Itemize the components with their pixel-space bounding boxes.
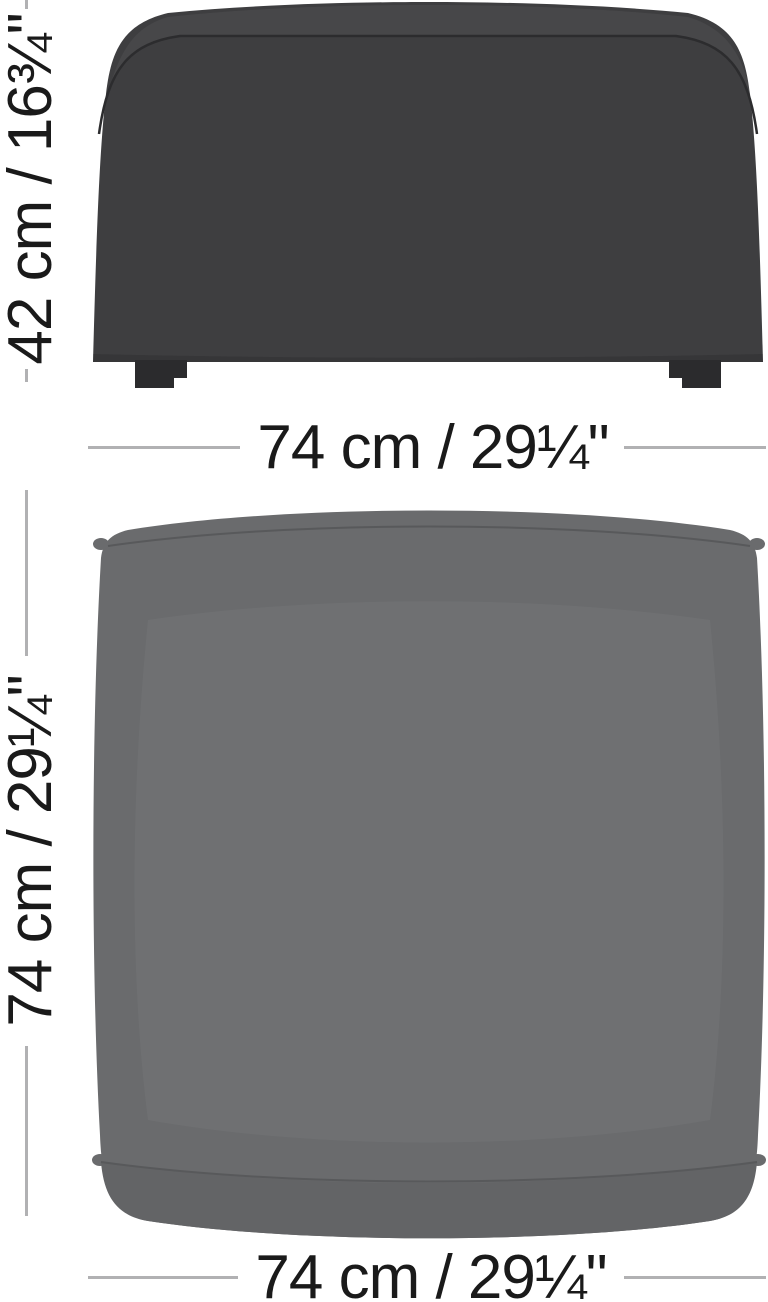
ottoman-top-corner-nub-tl [93,538,109,550]
front-width-dimension-line-right [624,446,766,449]
top-width-dimension-label: 74 cm / 29¼" [255,1247,606,1302]
top-width-dimension-line-right [624,1276,766,1279]
ottoman-top-view [88,500,768,1248]
ottoman-top-center-light [135,601,724,1142]
ottoman-front-foot-right [669,360,721,388]
front-width-dimension-line-left [88,446,240,449]
ottoman-top-corner-nub-tr [749,538,765,550]
front-height-dimension-line-bottom [25,369,28,382]
ottoman-front-view [90,2,766,390]
top-depth-dimension-line-top [25,490,28,656]
dimension-diagram: 42 cm / 16¾" 74 cm / 29¼" 74 cm / 29¼" 7… [0,0,768,1302]
top-width-dimension-line-left [88,1276,238,1279]
front-height-dimension-label: 42 cm / 16¾" [0,13,62,364]
top-depth-dimension-line-bottom [25,1046,28,1216]
ottoman-front-body [93,2,763,362]
front-height-dimension-line-top [25,0,28,9]
top-depth-dimension-label: 74 cm / 29¼" [0,675,62,1026]
front-width-dimension-label: 74 cm / 29¼" [257,417,608,479]
ottoman-front-foot-left [135,360,187,388]
